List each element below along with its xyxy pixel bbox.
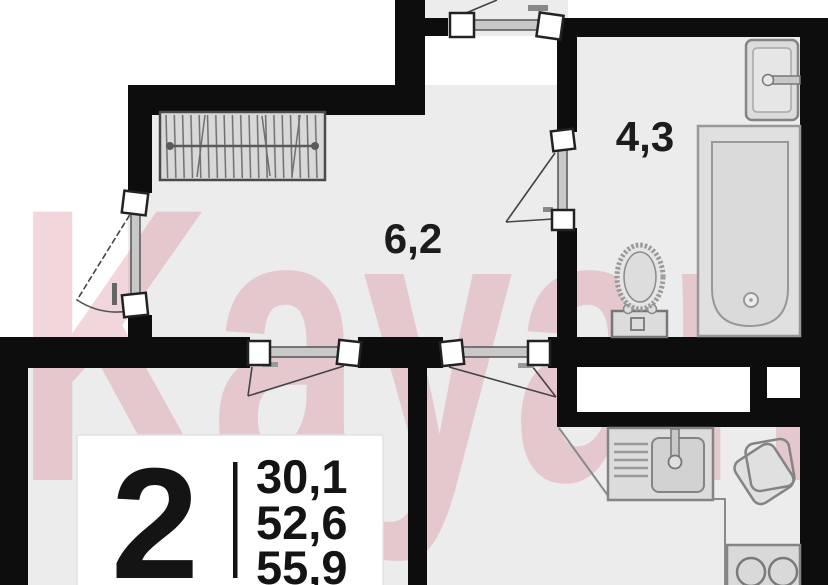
faucet-icon bbox=[669, 456, 682, 469]
door-hinge bbox=[551, 129, 575, 152]
toilet bbox=[612, 245, 667, 337]
area-value-total: 55,9 bbox=[256, 541, 347, 585]
bathroom-sink bbox=[746, 40, 800, 120]
door-hinge bbox=[248, 341, 270, 365]
door-hinge bbox=[450, 13, 474, 37]
divider-line bbox=[233, 462, 238, 578]
area-label-bathroom: 4,3 bbox=[616, 113, 674, 160]
door-hinge bbox=[536, 12, 563, 39]
door-hinge bbox=[528, 341, 550, 365]
door-leaf bbox=[131, 212, 140, 294]
toilet-tank bbox=[612, 311, 667, 337]
door-leaf bbox=[463, 347, 528, 357]
door-hinge bbox=[552, 210, 574, 230]
floor-plan: Kayan bbox=[0, 0, 828, 585]
vent-shaft-large bbox=[577, 367, 750, 412]
door-hinge bbox=[122, 293, 148, 317]
door-hinge bbox=[337, 340, 361, 366]
area-label-hallway: 6,2 bbox=[384, 215, 442, 262]
hallway-closet bbox=[160, 112, 325, 180]
info-card: 2 30,1 52,6 55,9 bbox=[77, 435, 383, 585]
faucet-icon bbox=[763, 75, 774, 86]
floor-plan-svg: Kayan bbox=[0, 0, 828, 585]
rooms-count: 2 bbox=[111, 436, 199, 585]
door-leaf bbox=[558, 150, 567, 210]
kitchen-stove bbox=[727, 545, 800, 585]
door-leaf bbox=[474, 20, 538, 30]
door-leaf bbox=[270, 347, 338, 357]
vent-shaft-small bbox=[767, 367, 800, 398]
bathtub bbox=[698, 126, 800, 336]
door-hinge bbox=[440, 340, 464, 366]
door-hinge bbox=[122, 191, 149, 216]
